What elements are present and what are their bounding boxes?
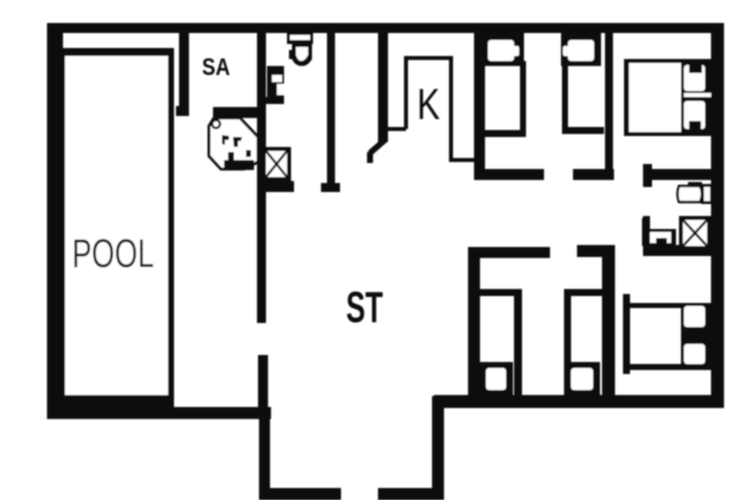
- svg-text:SA: SA: [202, 54, 230, 81]
- svg-text:K: K: [417, 80, 440, 129]
- svg-text:POOL: POOL: [72, 232, 154, 276]
- svg-text:ST: ST: [346, 283, 383, 332]
